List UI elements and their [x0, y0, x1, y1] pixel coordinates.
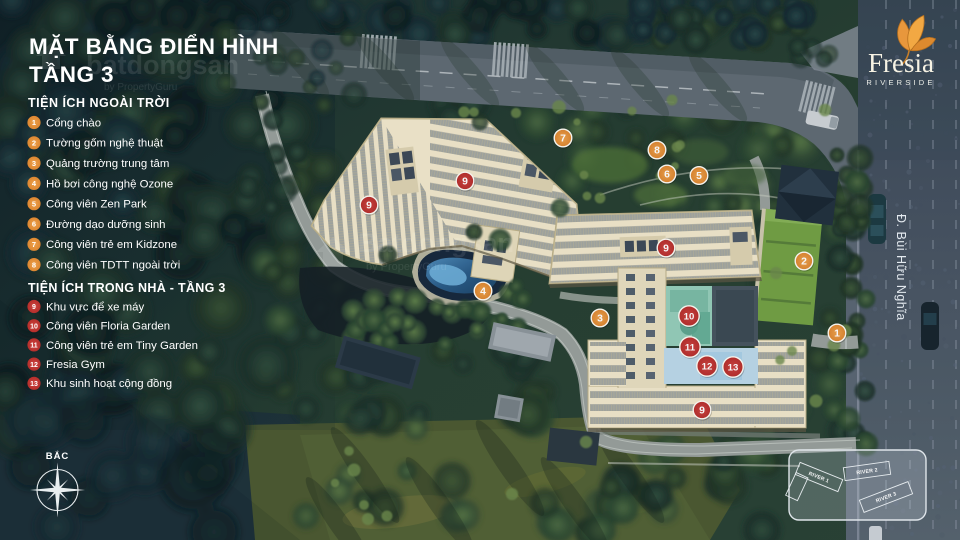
svg-text:RIVERSIDE: RIVERSIDE [866, 78, 935, 87]
svg-text:Khu sinh hoạt cộng đồng: Khu sinh hoạt cộng đồng [46, 378, 172, 390]
svg-text:Công viên Zen Park: Công viên Zen Park [46, 199, 147, 211]
svg-text:Tường gốm nghệ thuật: Tường gốm nghệ thuật [46, 138, 164, 150]
svg-text:6: 6 [32, 220, 36, 229]
svg-text:Fresia Gym: Fresia Gym [46, 359, 105, 371]
svg-text:Công viên Floria Garden: Công viên Floria Garden [46, 321, 170, 333]
svg-text:TẦNG 3: TẦNG 3 [29, 62, 114, 87]
svg-text:Đ. Bùi Hữu Nghĩa: Đ. Bùi Hữu Nghĩa [894, 214, 908, 321]
svg-text:5: 5 [32, 199, 36, 208]
svg-text:MẶT BẰNG ĐIỂN HÌNH: MẶT BẰNG ĐIỂN HÌNH [29, 34, 279, 59]
svg-text:Hồ bơi công nghệ Ozone: Hồ bơi công nghệ Ozone [46, 178, 173, 190]
svg-text:Khu vực để xe máy: Khu vực để xe máy [46, 301, 144, 313]
svg-text:Quảng trường trung tâm: Quảng trường trung tâm [46, 158, 169, 170]
svg-text:13: 13 [30, 381, 38, 388]
svg-text:by PropertyGuru: by PropertyGuru [366, 261, 447, 273]
svg-text:Công viên trẻ em Kidzone: Công viên trẻ em Kidzone [46, 239, 177, 251]
svg-text:Công viên trẻ em Tiny Garden: Công viên trẻ em Tiny Garden [46, 340, 198, 352]
svg-text:Cổng chào: Cổng chào [46, 117, 101, 129]
svg-text:9: 9 [32, 304, 36, 311]
svg-text:3: 3 [32, 159, 36, 168]
svg-text:10: 10 [30, 323, 38, 330]
svg-text:BẮC: BẮC [46, 451, 70, 462]
svg-text:TIỆN ÍCH TRONG NHÀ - TẦNG 3: TIỆN ÍCH TRONG NHÀ - TẦNG 3 [28, 280, 226, 295]
svg-text:12: 12 [30, 362, 38, 369]
svg-text:8: 8 [32, 260, 36, 269]
svg-text:Công viên TDTT ngoài trời: Công viên TDTT ngoài trời [46, 260, 180, 272]
svg-text:7: 7 [32, 240, 36, 249]
svg-text:Batdongsan: Batdongsan [358, 228, 514, 258]
svg-text:TIỆN ÍCH NGOÀI TRỜI: TIỆN ÍCH NGOÀI TRỜI [28, 95, 170, 110]
svg-text:Đường dạo dưỡng sinh: Đường dạo dưỡng sinh [46, 219, 166, 231]
svg-text:1: 1 [32, 118, 36, 127]
svg-text:11: 11 [30, 343, 38, 350]
svg-text:2: 2 [32, 139, 36, 148]
svg-text:Fresia: Fresia [868, 48, 934, 78]
svg-text:by PropertyGuru: by PropertyGuru [104, 82, 177, 93]
